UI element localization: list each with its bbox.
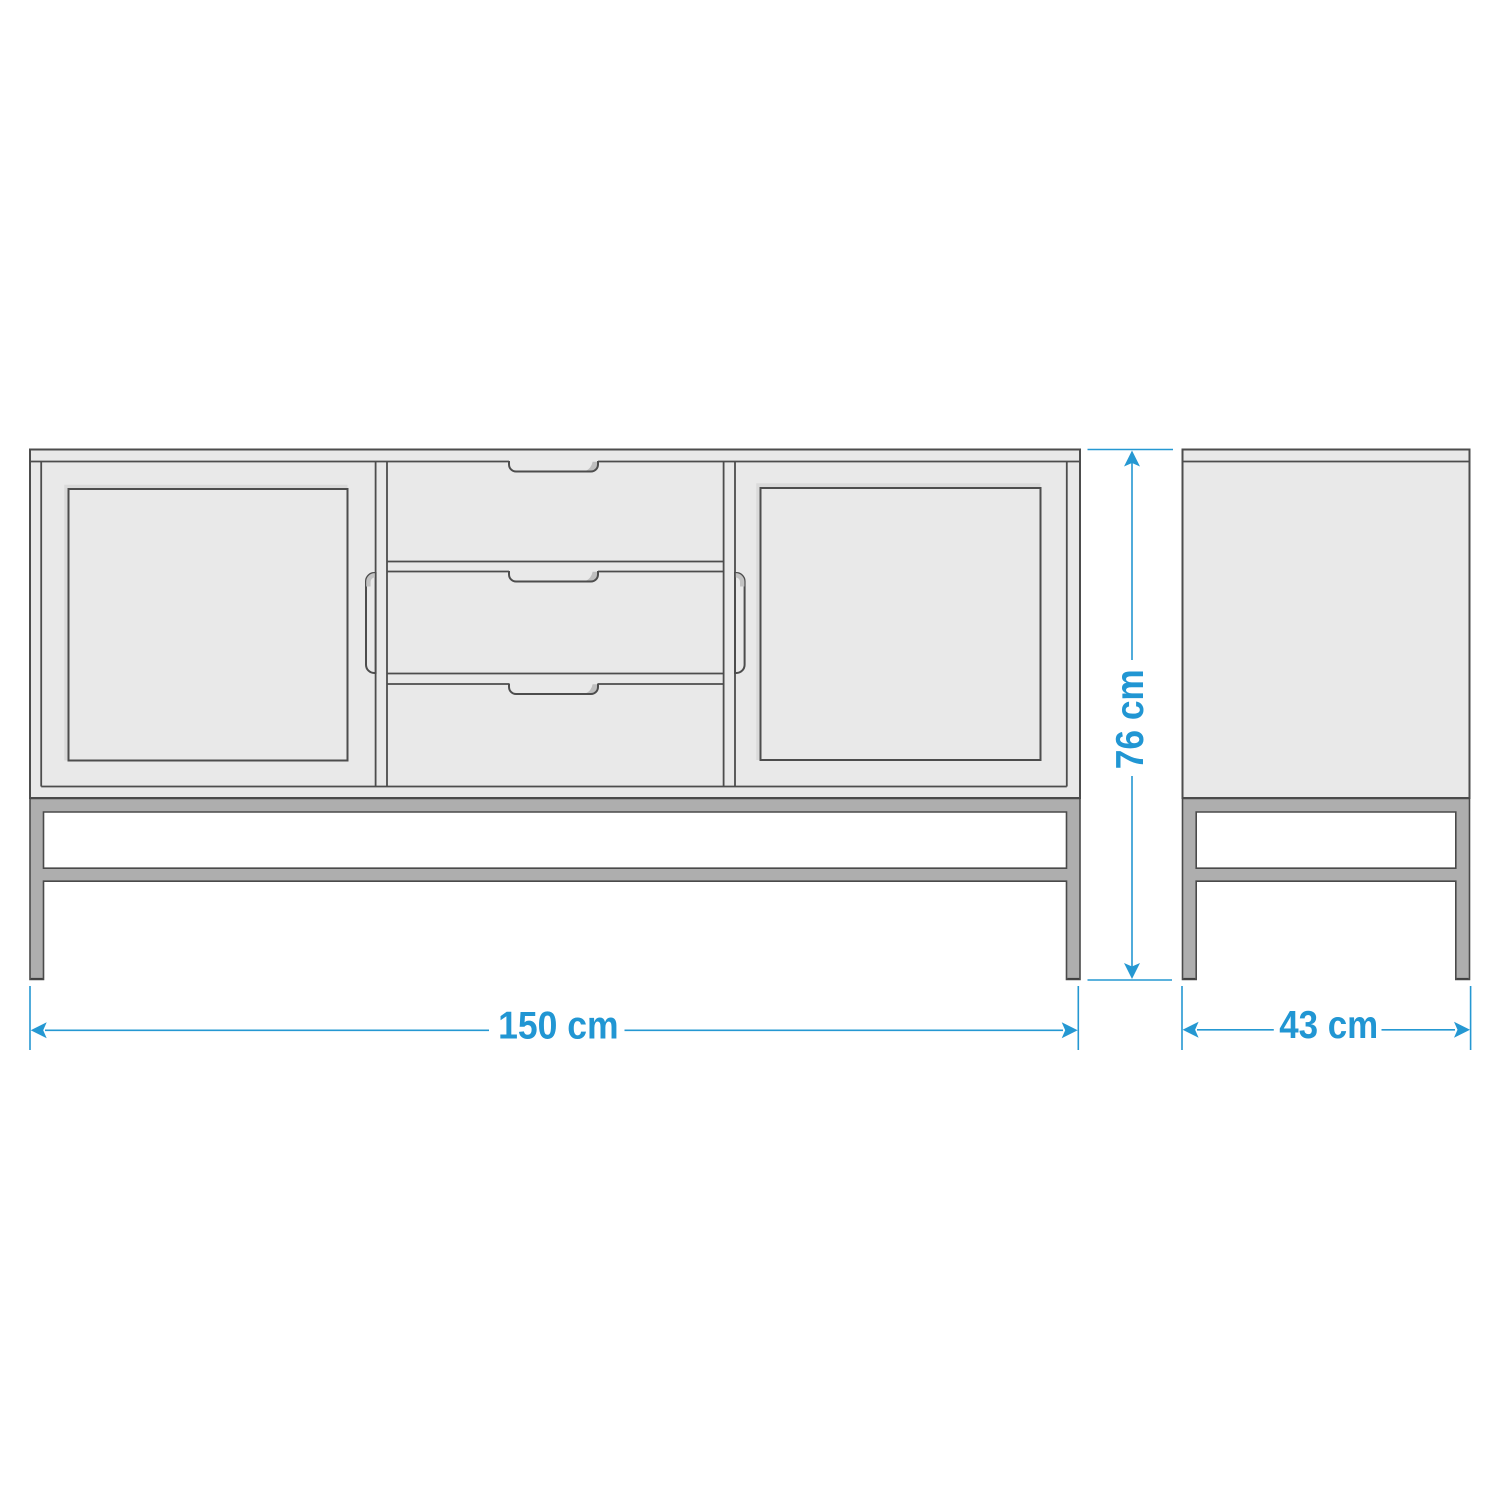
svg-text:76 cm: 76 cm (1109, 669, 1152, 769)
svg-text:150 cm: 150 cm (498, 1004, 619, 1047)
svg-text:43 cm: 43 cm (1279, 1004, 1378, 1047)
